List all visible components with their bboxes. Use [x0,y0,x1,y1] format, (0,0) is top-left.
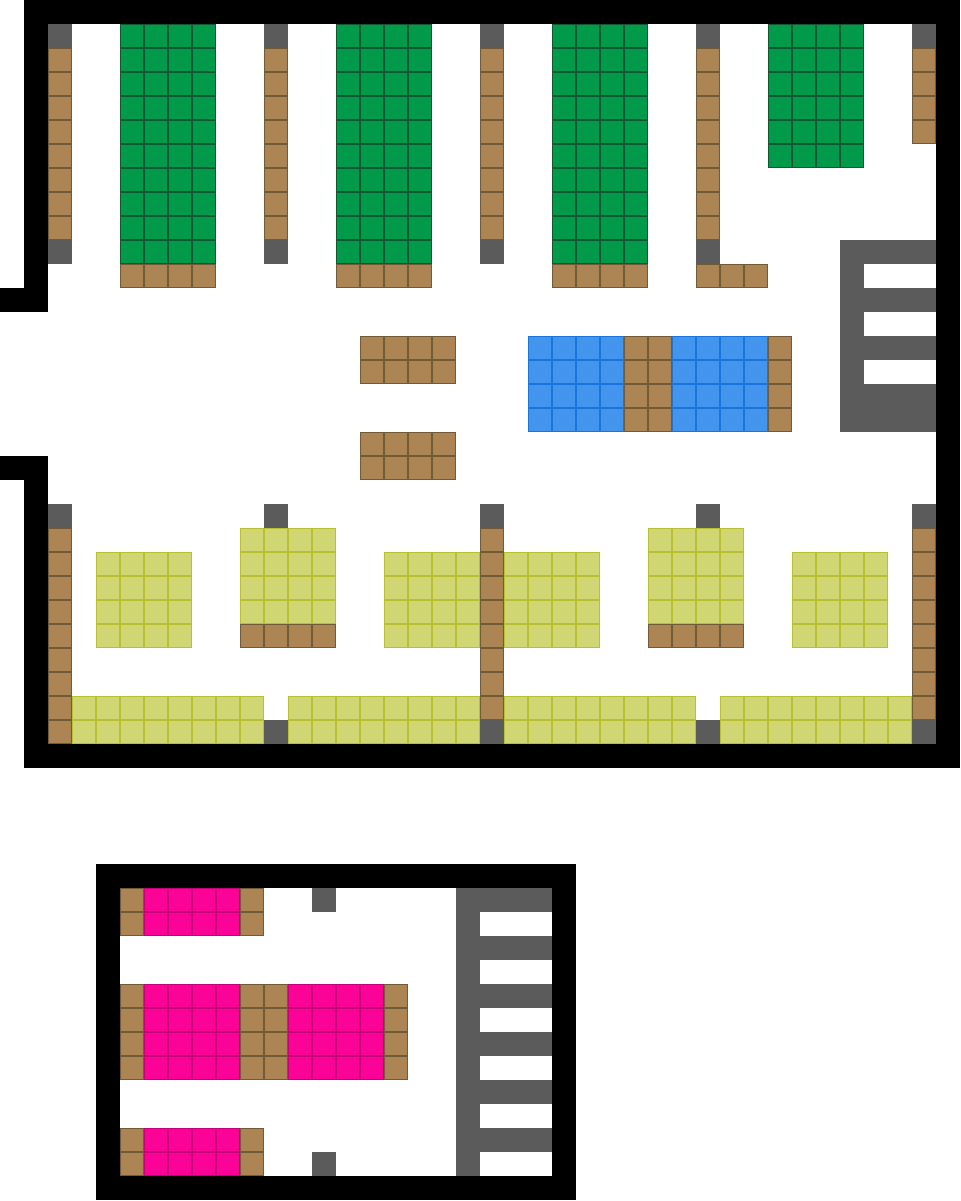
pillar-1-cap-top [48,24,72,48]
green-shelf-2-base [336,264,432,288]
pink-shelf-2-right-end [384,984,408,1080]
yellow-shelf-b-base [240,624,336,648]
green-shelf-4 [768,24,864,168]
upper-wall-left-top [24,24,48,312]
yellow-band-3 [504,696,696,744]
pillar-1-cap-bot [48,240,72,264]
blue-shelf-1 [528,336,624,432]
pink-shelf-3-right-end [240,1128,264,1176]
brown-table-2 [360,432,456,480]
gray-rack-arm-1 [864,240,936,264]
green-shelf-3 [552,24,648,264]
gray-rack-arm-3 [864,336,936,360]
pillar-6-cap-top [48,504,72,528]
pillar-5-cap-top [912,24,936,48]
pink-shelf-2-left-end [120,984,144,1080]
lower-rack-arm-4 [480,1032,552,1056]
yellow-band-4 [720,696,912,744]
pillar-2-cap-top [264,24,288,48]
pillar-10-cap-bot [912,720,936,744]
upper-wall-left-bottom [24,456,48,744]
pillar-8-brown [480,528,504,720]
pillar-3-brown [480,48,504,240]
band-gray-tile-2 [696,720,720,744]
pink-shelf-3-left-end [120,1128,144,1176]
blue-shelf-divider [624,336,672,432]
lower-gray-tile-bottom [312,1152,336,1176]
upper-wall-top [24,0,960,24]
pillar-8-cap-top [480,504,504,528]
lower-rack-arm-1 [480,888,552,912]
gray-rack-base [840,384,936,432]
upper-wall-right [936,24,960,744]
lower-wall-bottom [96,1176,576,1200]
yellow-shelf-c-right [504,552,600,648]
pillar-10-brown [912,528,936,720]
yellow-shelf-d [648,528,744,624]
green-shelf-1-base [120,264,216,288]
green-shelf-2 [336,24,432,264]
pillar-6-brown [48,528,72,744]
lower-rack-arm-2 [480,936,552,960]
blue-shelf-end [768,336,792,432]
pillar-2-cap-bot [264,240,288,264]
yellow-band-1 [72,696,264,744]
upper-wall-left-bot-notch [0,456,24,480]
pillar-8-cap-bot [480,720,504,744]
band-gray-tile-1 [264,720,288,744]
yellow-shelf-d-base [648,624,744,648]
lower-rack-bar [456,888,480,1176]
pillar-3-cap-top [480,24,504,48]
lower-wall-right [552,888,576,1200]
pink-shelf-3 [144,1128,240,1176]
lower-gray-tile-top [312,888,336,912]
pink-shelf-2b [288,984,384,1080]
pillar-5-brown [912,48,936,144]
yellow-shelf-b [240,528,336,624]
upper-wall-bottom [24,744,960,768]
pillar-4-cap-top [696,24,720,48]
pillar-4-brown [696,48,720,240]
green-shelf-3-base [552,264,648,288]
pillar-4-base-row [696,264,768,288]
yellow-band-2 [288,696,480,744]
green-shelf-1 [120,24,216,264]
pink-shelf-1 [144,888,240,936]
pillar-9-cap [696,504,720,528]
pillar-10-cap-top [912,504,936,528]
blue-shelf-2 [672,336,768,432]
lower-wall-left [96,888,120,1200]
pillar-4-cap-bot [696,240,720,264]
yellow-shelf-c-left [384,552,480,648]
lower-wall-top [96,864,576,888]
yellow-shelf-e [792,552,888,648]
upper-wall-left-top-notch [0,288,24,312]
brown-table-1 [360,336,456,384]
yellow-shelf-a [96,552,192,648]
pillar-1-brown [48,48,72,240]
lower-rack-arm-6 [480,1128,552,1152]
pillar-2-brown [264,48,288,240]
pillar-3-cap-bot [480,240,504,264]
pillar-7-cap [264,504,288,528]
gray-rack-arm-2 [864,288,936,312]
lower-rack-arm-5 [480,1080,552,1104]
pink-shelf-1-right-end [240,888,264,936]
lower-rack-arm-3 [480,984,552,1008]
pink-shelf-2a [144,984,240,1080]
pink-shelf-1-left-end [120,888,144,936]
grid-world-map [0,0,961,1201]
pink-shelf-2-divider [240,984,288,1080]
